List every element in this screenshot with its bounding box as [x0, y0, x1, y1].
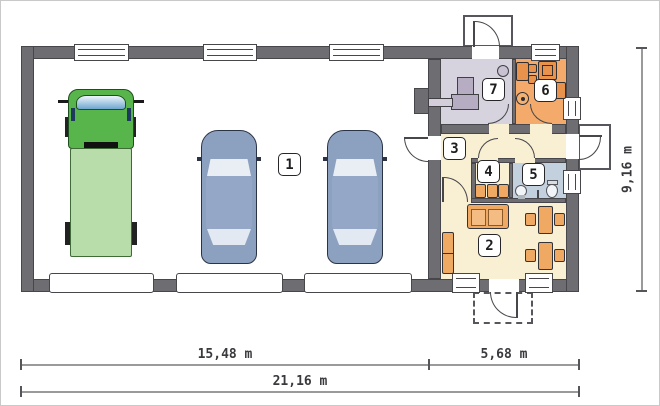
wall-storage-bath [509, 163, 513, 198]
kitchen-chair-left [528, 64, 537, 73]
truck-side-window-right [127, 108, 131, 121]
room-label-6: 6 [534, 79, 557, 102]
window-garage-3 [329, 44, 384, 61]
window-garage-2 [203, 44, 257, 61]
dining-chair-1-right [554, 213, 565, 226]
chimney-block [414, 88, 429, 114]
door-gap-kitchen [530, 124, 552, 134]
bathroom-partition-mark [537, 190, 539, 198]
car-1-roof [206, 176, 252, 229]
room-label-7-text: 7 [489, 82, 497, 98]
dining-table-2 [538, 242, 553, 270]
dining-chair-1-left [525, 213, 536, 226]
wall-left [21, 46, 34, 292]
boiler-unit-horizontal [451, 94, 479, 110]
water-heater-circle [497, 65, 509, 77]
dim-line-total-width [21, 391, 579, 393]
room-label-6-text: 6 [541, 83, 549, 99]
floor-plan: 1 2 3 4 5 6 7 15,48 m 5,68 m 21,16 m 9,1… [0, 0, 660, 406]
dining-table-1 [538, 206, 553, 234]
dim-line-garage-width [21, 364, 429, 366]
car-1-windshield [207, 159, 251, 176]
sofa-cushion-2 [488, 209, 503, 226]
garage-door-1 [49, 273, 154, 293]
room-label-3: 3 [443, 137, 466, 160]
room-label-4: 4 [477, 160, 500, 183]
car-2-windshield [333, 159, 377, 176]
wall-right [566, 46, 579, 292]
boiler-flue [428, 98, 453, 107]
car-2-rear-window [333, 229, 377, 245]
car-2-roof [332, 176, 378, 229]
dining-chair-2-right [554, 249, 565, 262]
truck-windshield [76, 95, 126, 110]
dim-label-living-width: 5,68 m [424, 347, 584, 362]
door-gap-entrance [472, 46, 499, 59]
dim-label-garage-width: 15,48 m [145, 347, 305, 362]
door-gap-garage-hall [428, 136, 441, 160]
room-label-3-text: 3 [450, 141, 458, 157]
window-kitchen-top [531, 44, 560, 61]
window-kitchen-right [563, 97, 581, 120]
dim-tick-depth-top [636, 47, 647, 49]
wall-divider-garage [428, 59, 441, 279]
dim-line-depth [641, 48, 643, 292]
dim-tick-total-left [20, 386, 22, 397]
window-dayroom-1 [452, 273, 480, 293]
room-label-5-text: 5 [529, 167, 537, 183]
locker-2 [487, 184, 498, 198]
cabinet-left-wall [442, 232, 454, 274]
room-label-1: 1 [278, 153, 301, 176]
door-leaf-terrace [516, 292, 518, 318]
room-label-2: 2 [478, 234, 501, 257]
dim-line-living-width [429, 364, 579, 366]
kitchen-table [538, 61, 557, 80]
sofa-cushion-1 [471, 209, 486, 226]
truck-mirror-right [133, 100, 144, 103]
room-label-2-text: 2 [485, 238, 493, 254]
room-label-5: 5 [522, 163, 545, 186]
door-gap-right [566, 134, 579, 159]
room-label-1-text: 1 [285, 157, 293, 173]
room-label-4-text: 4 [484, 164, 492, 180]
dining-chair-2-left [525, 249, 536, 262]
dim-tick-depth-bottom [636, 290, 647, 292]
kitchen-sink [516, 92, 529, 105]
window-garage-1 [74, 44, 129, 61]
garage-door-2 [176, 273, 283, 293]
door-gap-boiler [489, 124, 509, 134]
dim-label-depth: 9,16 m [621, 140, 636, 200]
locker-3 [498, 184, 509, 198]
truck-bed [70, 148, 132, 257]
truck-side-window-left [71, 108, 75, 121]
room-label-7: 7 [482, 78, 505, 101]
window-bathroom-right [563, 170, 581, 194]
locker-1 [475, 184, 486, 198]
dim-tick-left [20, 359, 22, 370]
dim-label-total-width: 21,16 m [220, 374, 380, 389]
window-dayroom-2 [525, 273, 553, 293]
bathroom-sink-pedestal [518, 195, 525, 199]
car-1-rear-window [207, 229, 251, 245]
garage-door-3 [304, 273, 412, 293]
dim-tick-total-right [578, 386, 580, 397]
door-gap-terrace [489, 279, 519, 292]
